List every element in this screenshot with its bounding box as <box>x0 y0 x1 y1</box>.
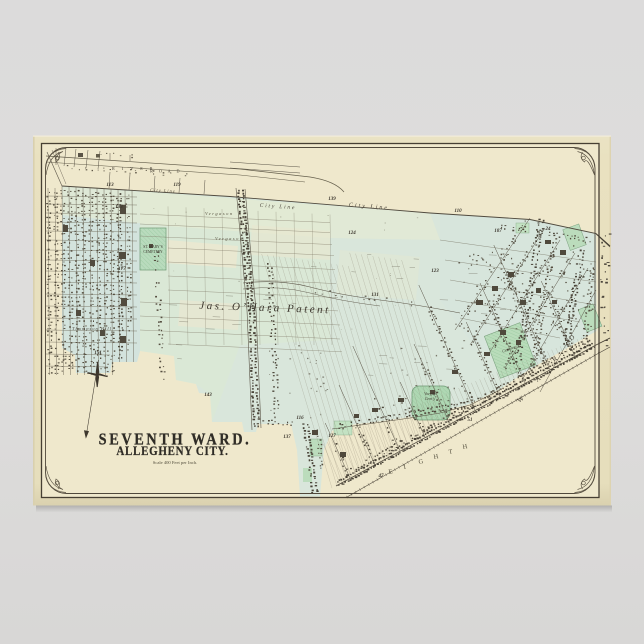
svg-text:ST. MARY’S: ST. MARY’S <box>143 245 163 249</box>
svg-text:Scale 400 Feet per Inch.: Scale 400 Feet per Inch. <box>153 460 198 465</box>
svg-text:CEMETERY: CEMETERY <box>143 250 163 254</box>
svg-text:139: 139 <box>328 197 336 202</box>
svg-text:107: 107 <box>494 229 502 234</box>
svg-text:119: 119 <box>173 183 181 188</box>
svg-text:131: 131 <box>371 293 379 298</box>
svg-text:24: 24 <box>545 227 552 232</box>
svg-text:123: 123 <box>431 269 439 274</box>
svg-text:110: 110 <box>454 209 462 214</box>
svg-text:47: 47 <box>378 474 385 479</box>
svg-text:124: 124 <box>348 231 356 236</box>
svg-text:113: 113 <box>106 183 114 188</box>
svg-text:133: 133 <box>115 205 123 210</box>
svg-text:ALLEGHENY CITY.: ALLEGHENY CITY. <box>116 445 228 459</box>
svg-text:Vergason: Vergason <box>205 211 234 216</box>
svg-text:137: 137 <box>283 435 291 440</box>
svg-text:Vergason: Vergason <box>215 236 244 241</box>
svg-text:116: 116 <box>296 416 304 421</box>
svg-text:R O A D: R O A D <box>150 169 182 174</box>
svg-text:51: 51 <box>468 418 473 423</box>
svg-text:177: 177 <box>118 267 126 272</box>
svg-text:Thompson Hill: Thompson Hill <box>72 326 112 331</box>
svg-text:Cem’y: Cem’y <box>425 396 436 401</box>
svg-text:127: 127 <box>328 434 336 439</box>
svg-text:143: 143 <box>204 393 212 398</box>
svg-text:151: 151 <box>94 351 102 356</box>
